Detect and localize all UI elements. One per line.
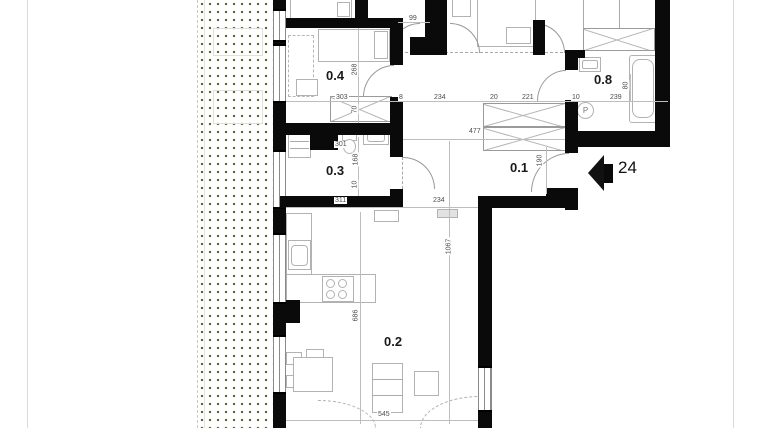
- window: [273, 335, 286, 394]
- dimension-label: 10: [571, 94, 581, 101]
- dimension-line: [630, 74, 631, 101]
- floor-plan: P: [0, 0, 760, 428]
- dimension-label: 268: [351, 63, 358, 77]
- stove-burner: [326, 290, 335, 299]
- tv: [437, 209, 458, 218]
- shaft-divider-line: [619, 0, 620, 28]
- terrace-furniture: [213, 90, 263, 124]
- nightstand: [452, 0, 471, 17]
- wall-segment: [478, 196, 548, 208]
- bed-pillow: [374, 31, 388, 59]
- page-edge-line-right: [733, 0, 734, 428]
- door-arc: [450, 23, 480, 53]
- balcony-door-arc: [420, 396, 480, 428]
- door-arc: [537, 70, 566, 101]
- wall-segment: [546, 188, 578, 208]
- desk: [296, 79, 318, 96]
- dimension-label: 234: [433, 94, 447, 101]
- wall-segment: [533, 20, 545, 55]
- wall-segment: [355, 0, 368, 18]
- dining-table: [293, 357, 333, 392]
- wall-segment: [655, 0, 670, 147]
- room-label-0-4: 0.4: [326, 68, 344, 83]
- stove-burner: [338, 279, 347, 288]
- wall-segment: [286, 18, 390, 28]
- dimension-label: 70: [351, 105, 358, 115]
- washing-machine-line: [290, 148, 309, 149]
- wall-segment: [286, 123, 390, 135]
- wall-segment: [565, 50, 585, 58]
- terrace-dotted-area: [197, 0, 277, 428]
- window: [273, 233, 286, 304]
- sink-basin: [582, 60, 598, 69]
- sofa-cushion-line: [372, 379, 403, 380]
- fridge: [374, 210, 399, 222]
- sofa: [372, 363, 403, 413]
- apartment-number: 24: [618, 158, 637, 178]
- dimension-line: [546, 147, 547, 194]
- dimension-label: 686: [352, 309, 359, 323]
- dimension-label: 1067: [445, 238, 452, 256]
- wall-segment: [273, 0, 286, 9]
- washing-machine-letter: P: [577, 106, 594, 115]
- bathtub-inner: [632, 59, 654, 118]
- bed-pillow: [506, 27, 531, 44]
- washing-machine-line: [290, 141, 309, 142]
- dimension-label: 303: [335, 94, 349, 101]
- page-edge-line-left: [27, 0, 28, 428]
- coffee-table: [414, 371, 439, 396]
- wall-segment: [478, 208, 492, 366]
- bed-pillow: [337, 2, 350, 17]
- dimension-line: [398, 22, 430, 23]
- window: [273, 44, 286, 103]
- room-label-0-3: 0.3: [326, 163, 344, 178]
- wall-segment: [273, 99, 286, 150]
- room-label-0-1: 0.1: [510, 160, 528, 175]
- dimension-label: 10: [351, 180, 358, 190]
- dimension-label: 168: [352, 153, 359, 167]
- dimension-label: 239: [609, 94, 623, 101]
- wall-segment: [273, 205, 286, 233]
- dimension-label: 99: [408, 15, 418, 22]
- dimension-line: [286, 101, 668, 102]
- dimension-label: 221: [521, 94, 535, 101]
- wall-segment: [565, 100, 578, 153]
- dimension-line: [360, 212, 361, 424]
- closet-crossbox: [483, 103, 568, 127]
- dimension-label: 545: [377, 411, 391, 418]
- room-label-0-8: 0.8: [594, 72, 612, 87]
- wall-segment: [286, 300, 300, 323]
- entrance-arrow-icon: [588, 155, 604, 191]
- wall-segment: [390, 18, 403, 65]
- dimension-label: 8: [398, 94, 404, 101]
- sofa-cushion-line: [372, 395, 403, 396]
- dimension-label: 311: [334, 197, 347, 204]
- wall-segment: [425, 0, 447, 55]
- wall-segment: [273, 300, 286, 335]
- stove-burner: [338, 290, 347, 299]
- room-label-0-2: 0.2: [384, 334, 402, 349]
- shaft-side-line: [583, 0, 584, 28]
- crossbox-diagonal: [584, 29, 655, 51]
- dimension-line: [403, 139, 565, 140]
- dimension-label: 20: [489, 94, 499, 101]
- balcony-door-opening: [478, 366, 492, 412]
- door-arc: [403, 157, 435, 189]
- balcony-door-arc: [318, 400, 376, 428]
- terrace-joint-line: [204, 0, 205, 428]
- dimension-label: 234: [432, 197, 446, 204]
- entrance-arrow-tail: [604, 164, 613, 183]
- shaft-crossbox: [583, 28, 655, 51]
- dimension-label: 190: [536, 154, 543, 168]
- terrace-furniture: [213, 28, 263, 56]
- wall-segment: [578, 131, 670, 147]
- wall-segment: [273, 390, 286, 428]
- kitchen-sink-basin: [291, 245, 308, 266]
- wall-segment: [410, 37, 425, 55]
- washing-machine: [288, 134, 311, 158]
- crossbox-diagonal: [484, 104, 568, 127]
- wall-segment: [390, 97, 403, 157]
- dimension-label: 477: [468, 128, 482, 135]
- wall-segment: [565, 58, 578, 70]
- dimension-line: [449, 141, 450, 424]
- window: [273, 9, 286, 42]
- door-leaf: [402, 157, 403, 189]
- dimension-label: 301: [334, 141, 348, 148]
- stove-burner: [326, 279, 335, 288]
- dimension-label: 80: [622, 81, 629, 91]
- door-arc: [363, 65, 394, 97]
